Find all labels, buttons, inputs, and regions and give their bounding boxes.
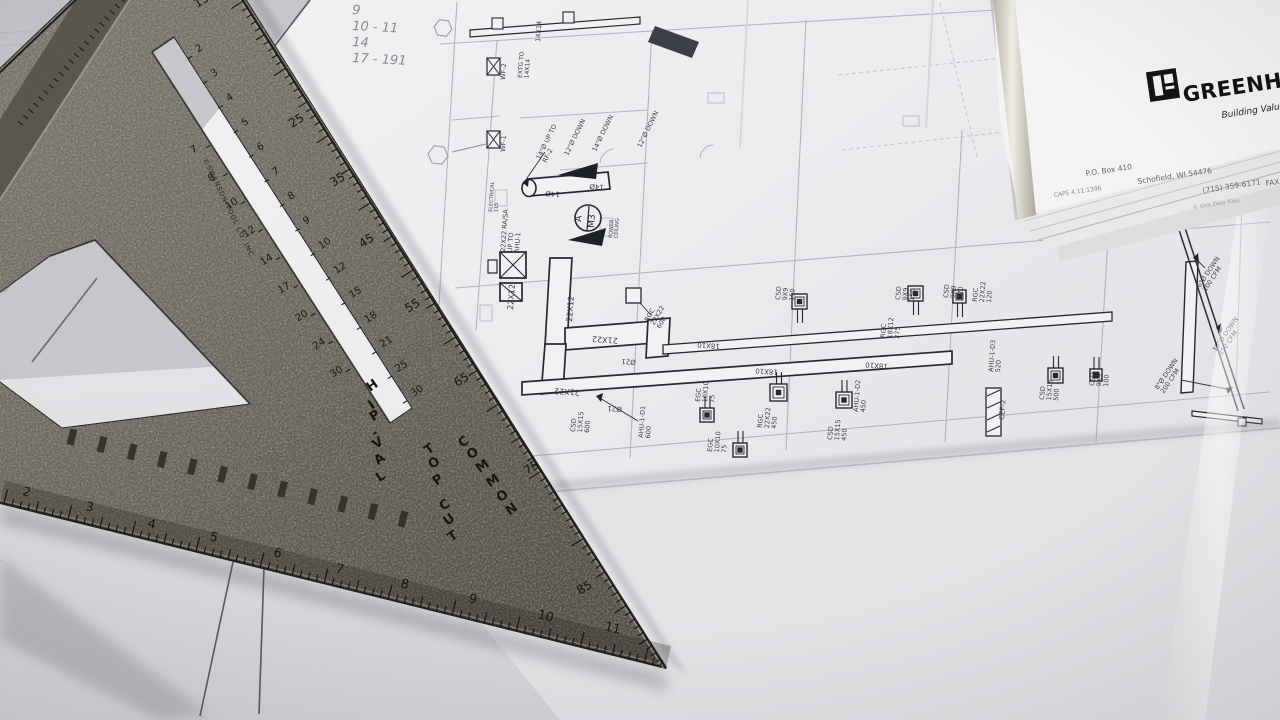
photo-blueprint-and-speed-square: A M3 22X1222X1221X2221X22Ø21Ø2114Ø14ØCSD… [0, 0, 1280, 720]
vignette-overlay [0, 0, 1280, 720]
scene-canvas: A M3 22X1222X1221X2221X22Ø21Ø2114Ø14ØCSD… [0, 0, 1280, 720]
